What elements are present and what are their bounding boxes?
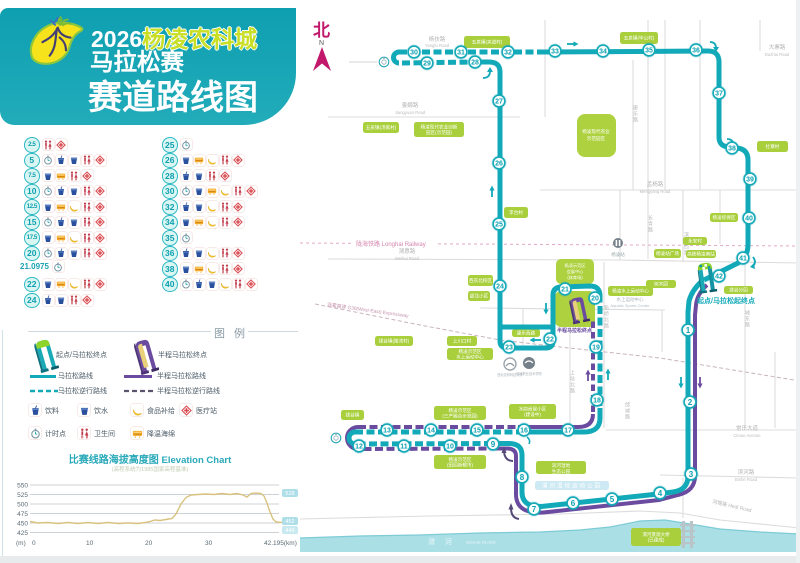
svg-text:北: 北 (313, 21, 330, 40)
svg-text:起点/马拉松起终点: 起点/马拉松起终点 (696, 296, 755, 305)
svg-text:25: 25 (495, 222, 503, 229)
svg-text:17: 17 (564, 428, 572, 435)
svg-text:9: 9 (491, 440, 496, 449)
svg-text:22: 22 (546, 337, 554, 344)
svg-text:41: 41 (739, 256, 747, 263)
svg-text:23: 23 (505, 345, 513, 352)
svg-text:16: 16 (520, 428, 528, 435)
svg-text:12: 12 (355, 444, 363, 451)
svg-text:28: 28 (471, 60, 479, 67)
svg-text:42: 42 (715, 274, 723, 281)
svg-text:36: 36 (692, 48, 700, 55)
svg-text:29: 29 (423, 61, 431, 68)
svg-text:20: 20 (591, 296, 599, 303)
svg-text:31: 31 (457, 50, 465, 57)
svg-text:38: 38 (728, 146, 736, 153)
svg-text:19: 19 (592, 345, 600, 352)
svg-text:7: 7 (532, 505, 537, 514)
svg-text:4: 4 (658, 489, 663, 498)
svg-text:30: 30 (410, 50, 418, 57)
svg-text:27: 27 (495, 99, 503, 106)
svg-text:40: 40 (745, 216, 753, 223)
svg-text:39: 39 (746, 177, 754, 184)
svg-text:6: 6 (571, 499, 576, 508)
svg-text:杨凌职业技术学院: 杨凌职业技术学院 (516, 371, 542, 376)
svg-text:32: 32 (504, 50, 512, 57)
svg-text:11: 11 (400, 444, 408, 451)
svg-text:21: 21 (561, 287, 569, 294)
svg-text:34: 34 (599, 49, 607, 56)
svg-text:半程马拉松终点: 半程马拉松终点 (557, 327, 592, 334)
svg-text:24: 24 (496, 284, 504, 291)
svg-text:35: 35 (645, 48, 653, 55)
svg-text:33: 33 (551, 49, 559, 56)
svg-text:N: N (319, 40, 324, 47)
svg-text:18: 18 (593, 398, 601, 405)
svg-text:1: 1 (686, 326, 691, 335)
svg-text:15: 15 (473, 428, 481, 435)
svg-text:26: 26 (495, 161, 503, 168)
svg-text:37: 37 (715, 91, 723, 98)
svg-text:3: 3 (689, 470, 694, 479)
svg-text:14: 14 (427, 428, 435, 435)
svg-text:10: 10 (446, 444, 454, 451)
svg-text:13: 13 (383, 428, 391, 435)
svg-text:5: 5 (610, 495, 615, 504)
svg-text:8: 8 (520, 473, 525, 482)
svg-text:2: 2 (688, 398, 693, 407)
